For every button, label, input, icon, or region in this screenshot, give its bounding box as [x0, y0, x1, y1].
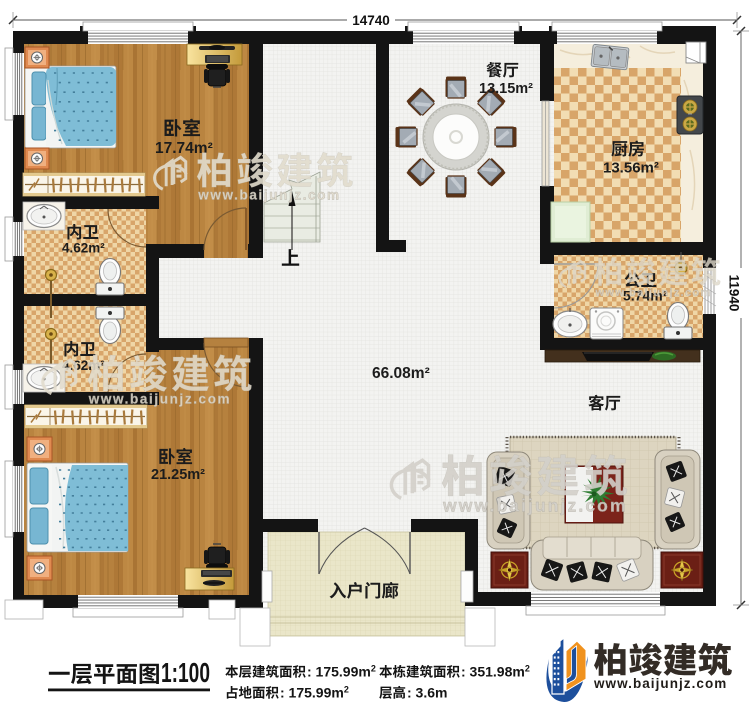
- svg-text:66.08m²: 66.08m²: [372, 365, 430, 382]
- svg-text:14740: 14740: [352, 13, 390, 28]
- svg-text:21.25m²: 21.25m²: [151, 467, 205, 483]
- svg-text:www.baijunjz.com: www.baijunjz.com: [442, 496, 628, 516]
- svg-text:11940: 11940: [727, 275, 742, 312]
- svg-text:: 351.98m2: : 351.98m2: [461, 664, 530, 680]
- svg-text:13.15m²: 13.15m²: [479, 81, 533, 97]
- svg-text:: 175.99m2: : 175.99m2: [280, 685, 349, 701]
- svg-text:www.baijunjz.com: www.baijunjz.com: [197, 188, 340, 203]
- svg-text:www.baijunjz.com: www.baijunjz.com: [595, 287, 712, 299]
- svg-text:1:100: 1:100: [161, 657, 210, 688]
- svg-text:13.56m²: 13.56m²: [603, 160, 659, 177]
- svg-text:www.baijunjz.com: www.baijunjz.com: [88, 392, 231, 407]
- svg-text:4.62m²: 4.62m²: [62, 241, 105, 256]
- svg-text:www.baijunjz.com: www.baijunjz.com: [593, 676, 727, 691]
- svg-text:: 175.99m2: : 175.99m2: [307, 664, 376, 680]
- svg-text:: 3.6m: : 3.6m: [407, 685, 447, 701]
